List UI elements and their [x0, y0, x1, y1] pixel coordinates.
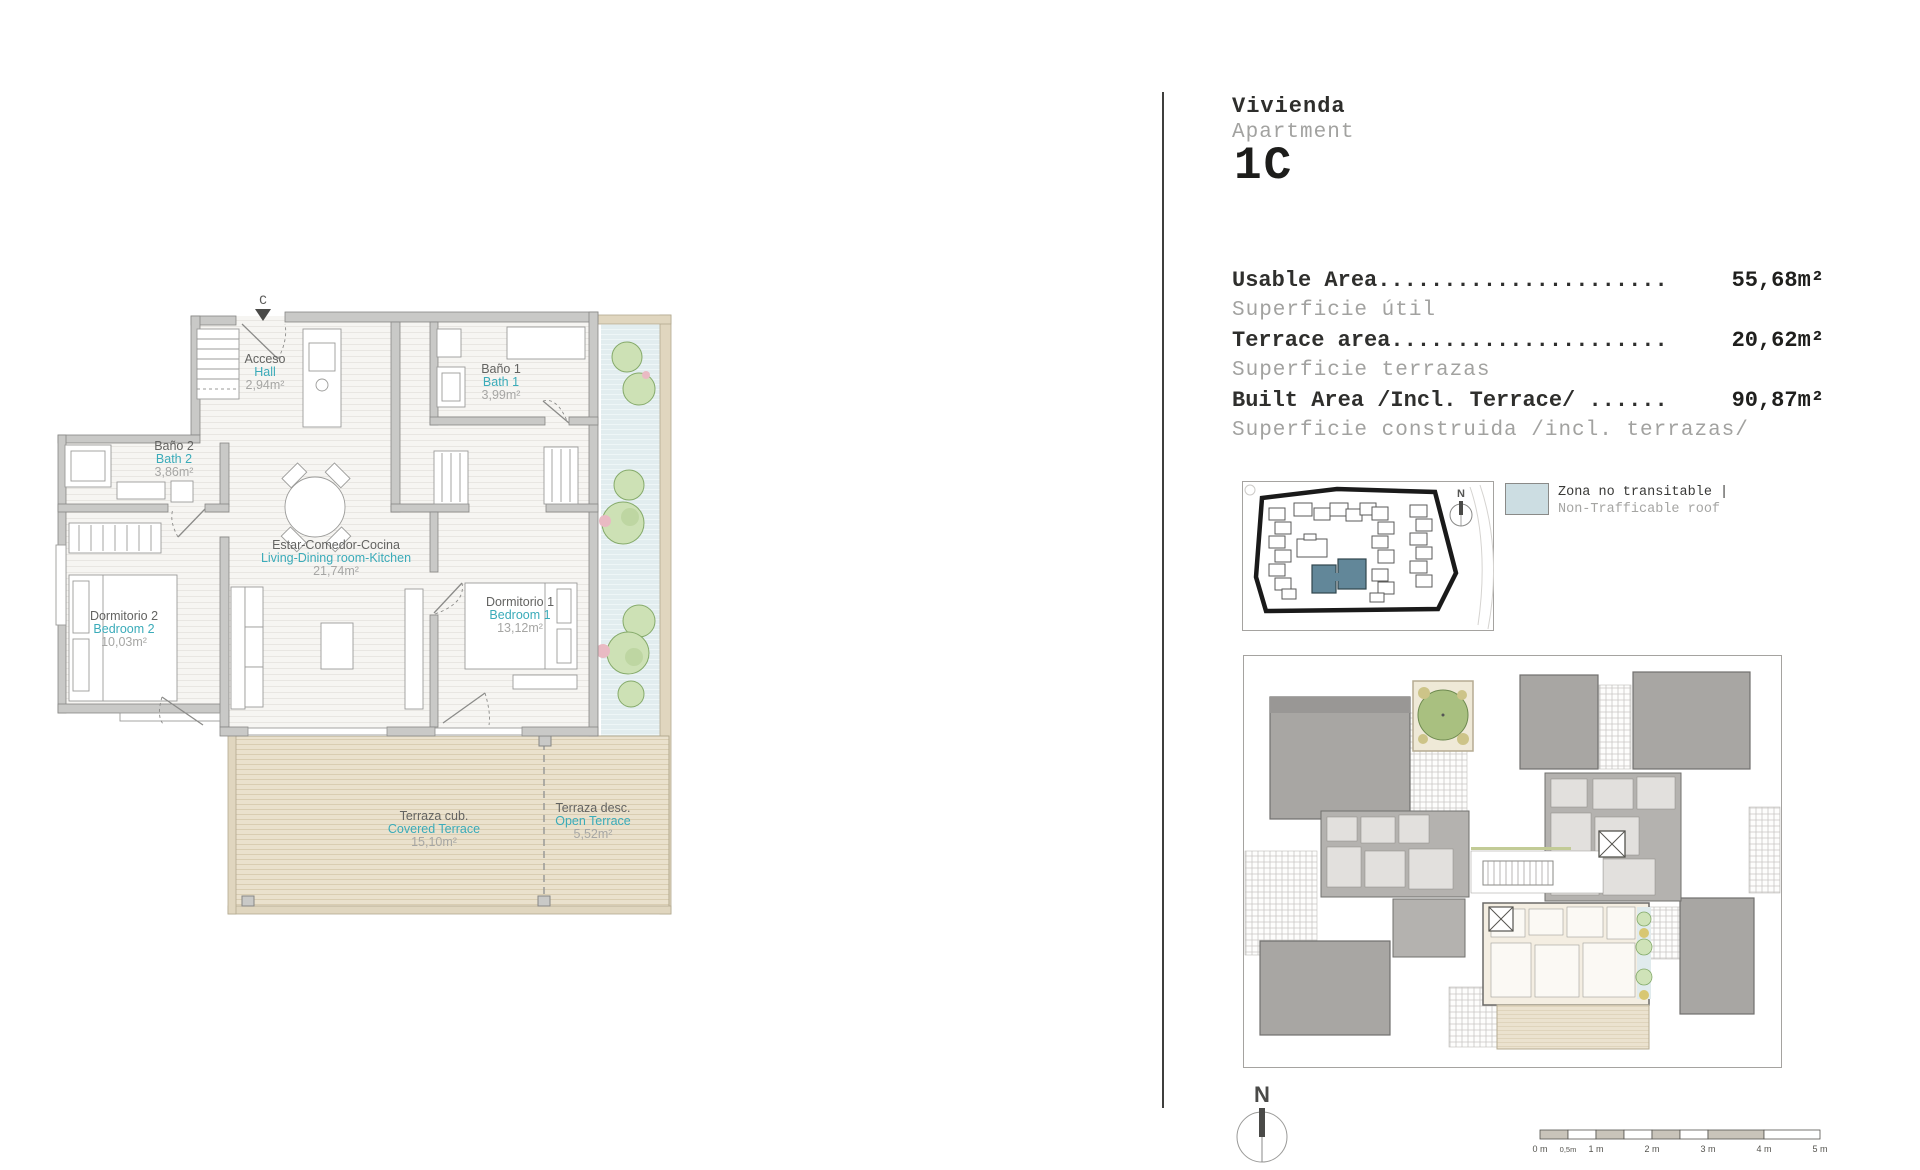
site-plan: N [1242, 481, 1494, 631]
scale-bar-labels: 0 m 0,5m 1 m 2 m 3 m 4 m 5 m [1532, 1144, 1827, 1154]
scale-bar: 0 m 0,5m 1 m 2 m 3 m 4 m 5 m [1532, 1124, 1832, 1160]
apartment-floor-plan: C [45, 285, 677, 933]
svg-text:2 m: 2 m [1644, 1144, 1659, 1154]
section-marker-label: C [259, 293, 267, 308]
scale-bar-segments [1540, 1130, 1820, 1139]
page: { "header": { "title_es": "Vivienda", "t… [0, 0, 1920, 1166]
bedroom2-wardrobe [69, 523, 161, 553]
title-spanish: Vivienda [1232, 94, 1346, 119]
built-area-row: Built Area /Incl. Terrace/ ...... 90,87m… [1232, 386, 1824, 416]
area-table: Usable Area...................... 55,68m… [1232, 266, 1824, 446]
kitchen-counter [303, 329, 341, 427]
coffee-table [321, 623, 353, 669]
terrace-area-row: Terrace area..................... 20,62m… [1232, 326, 1824, 356]
building-key-plan [1243, 655, 1782, 1068]
hall-closet [197, 329, 239, 399]
bedroom2-bed [69, 575, 177, 701]
built-area-row-es: Superficie construida /incl. terrazas/ [1232, 416, 1824, 446]
compass-north-label: N [1254, 1082, 1270, 1107]
legend-text: Zona no transitable | Non-Trafficable ro… [1558, 484, 1728, 518]
svg-text:0 m: 0 m [1532, 1144, 1547, 1154]
svg-text:1 m: 1 m [1588, 1144, 1603, 1154]
sofa [231, 587, 263, 709]
svg-text:4 m: 4 m [1756, 1144, 1771, 1154]
usable-area-row: Usable Area...................... 55,68m… [1232, 266, 1824, 296]
non-trafficable-swatch [1505, 483, 1549, 515]
svg-text:5 m: 5 m [1812, 1144, 1827, 1154]
usable-area-row-es: Superficie útil [1232, 296, 1824, 326]
svg-text:3 m: 3 m [1700, 1144, 1715, 1154]
terrace-area-row-es: Superficie terrazas [1232, 356, 1824, 386]
apartment-terrace [1497, 1005, 1649, 1049]
vertical-divider [1162, 92, 1164, 1108]
tv-cabinet [405, 589, 423, 709]
compass: N [1228, 1078, 1298, 1170]
roof-garden [1413, 681, 1473, 751]
terrace-floor [228, 731, 671, 914]
site-north-label: N [1457, 488, 1465, 500]
unit-number: 1C [1234, 140, 1293, 192]
svg-text:0,5m: 0,5m [1560, 1145, 1577, 1154]
highlighted-apartment-1c [1483, 903, 1652, 1049]
